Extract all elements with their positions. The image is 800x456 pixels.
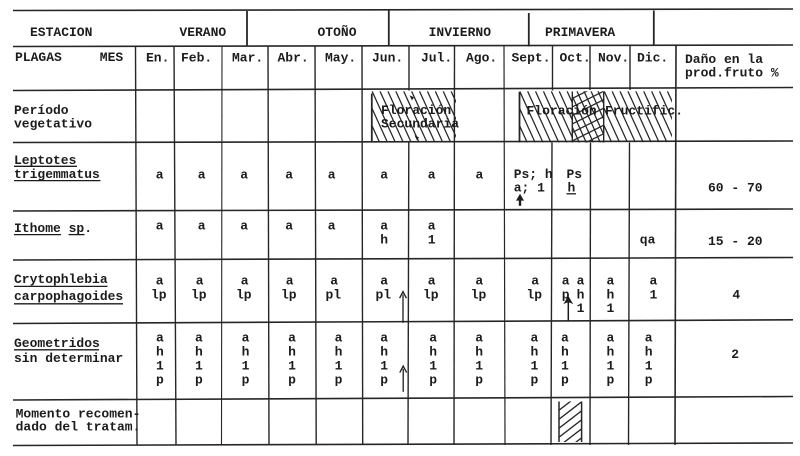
svg-text:60 - 70: 60 - 70 [708,181,763,196]
svg-text:1: 1 [645,359,653,374]
svg-text:a: a [607,331,615,346]
svg-text:lp: lp [281,288,297,303]
svg-text:a: a [156,168,164,183]
svg-text:a: a [380,219,388,234]
svg-text:1: 1 [531,359,539,374]
svg-text:h: h [645,345,653,360]
svg-text:Secundaria: Secundaria [381,117,459,132]
svg-text:a: a [650,274,658,289]
svg-text:1: 1 [429,359,437,374]
svg-text:a: a [285,168,293,183]
svg-text:a: a [241,274,249,289]
svg-text:15 - 20: 15 - 20 [708,234,763,249]
svg-text:a: a [428,274,436,289]
svg-text:p: p [380,373,388,388]
svg-text:Fructific.: Fructific. [605,104,683,119]
svg-text:lp: lp [151,288,167,303]
svg-text:h: h [335,345,343,360]
svg-text:h: h [380,345,388,360]
svg-text:p: p [561,373,569,388]
svg-text:h: h [156,345,164,360]
svg-text:lp: lp [471,288,487,303]
svg-text:a: a [156,219,164,234]
svg-text:a: a [330,274,338,289]
svg-text:ESTACION: ESTACION [30,25,92,40]
svg-text:h: h [429,345,437,360]
svg-text:En.: En. [146,50,169,65]
svg-text:lp: lp [236,288,252,303]
svg-text:1: 1 [380,359,388,374]
svg-text:lp: lp [191,288,207,303]
svg-text:pl: pl [326,288,342,303]
svg-text:lp: lp [423,288,439,303]
svg-text:a: a [380,274,388,289]
svg-text:May.: May. [325,50,356,65]
svg-text:a; 1: a; 1 [514,180,545,195]
svg-text:p: p [645,373,653,388]
svg-text:1: 1 [195,359,203,374]
svg-text:trigemmatus: trigemmatus [14,167,100,182]
svg-text:OTOÑO: OTOÑO [318,25,357,40]
svg-text:a: a [476,168,484,183]
svg-text:a: a [240,168,248,183]
svg-text:a: a [242,331,250,346]
svg-text:1: 1 [561,359,569,374]
svg-text:Nov.: Nov. [598,50,629,65]
svg-text:a: a [562,274,570,289]
svg-text:1: 1 [288,359,296,374]
svg-text:2: 2 [731,347,739,362]
svg-text:PRIMAVERA: PRIMAVERA [545,25,615,40]
svg-text:p: p [475,373,483,388]
svg-text:a: a [561,331,569,346]
svg-text:vegetativo: vegetativo [14,117,92,132]
svg-text:a: a [285,219,293,234]
svg-text:Jul.: Jul. [421,50,452,65]
svg-text:carpophagoides: carpophagoides [14,289,123,304]
svg-text:a: a [328,168,336,183]
svg-text:a: a [428,168,436,183]
svg-text:Ithome sp.: Ithome sp. [14,221,92,236]
svg-text:p: p [429,373,437,388]
svg-text:Floración: Floración [527,104,597,119]
svg-text:a: a [240,219,248,234]
svg-text:h: h [561,345,569,360]
svg-text:a: a [475,331,483,346]
svg-text:a: a [607,274,615,289]
svg-text:dado del tratam.: dado del tratam. [16,420,141,435]
svg-text:a: a [196,274,204,289]
svg-text:a: a [531,331,539,346]
svg-text:a: a [429,331,437,346]
svg-text:Crytophlebia: Crytophlebia [14,272,108,287]
svg-text:h: h [607,345,615,360]
svg-text:pl: pl [376,288,392,303]
svg-text:Dic.: Dic. [637,50,668,65]
svg-text:prod.fruto %: prod.fruto % [685,66,779,81]
svg-text:a: a [645,331,653,346]
svg-text:p: p [607,373,615,388]
svg-text:a: a [286,274,294,289]
svg-text:a: a [475,274,483,289]
svg-text:a: a [335,331,343,346]
svg-text:h: h [380,233,388,248]
svg-text:a: a [198,168,206,183]
svg-text:Feb.: Feb. [181,50,212,65]
svg-text:a: a [428,219,436,234]
svg-text:Abr.: Abr. [278,50,309,65]
svg-text:1: 1 [475,359,483,374]
svg-text:lp: lp [527,288,543,303]
svg-text:h: h [195,345,203,360]
svg-text:p: p [288,373,296,388]
svg-text:a: a [156,331,164,346]
svg-text:a: a [531,274,539,289]
svg-text:1: 1 [650,288,658,303]
svg-text:sin determinar: sin determinar [14,351,123,366]
svg-text:h: h [568,180,576,195]
svg-text:a: a [328,219,336,234]
svg-text:a: a [380,331,388,346]
svg-text:4: 4 [732,288,740,303]
svg-text:h: h [531,345,539,360]
svg-text:Geometridos: Geometridos [14,336,100,351]
svg-text:a: a [577,274,585,289]
svg-text:qa: qa [640,233,656,248]
svg-text:1: 1 [607,359,615,374]
svg-text:Sept.: Sept. [512,50,551,65]
svg-text:h: h [242,345,250,360]
svg-text:1: 1 [428,233,436,248]
svg-text:h: h [288,345,296,360]
svg-text:Ago.: Ago. [466,50,497,65]
svg-text:a: a [198,219,206,234]
svg-text:p: p [195,373,203,388]
svg-text:p: p [242,373,250,388]
svg-text:INVIERNO: INVIERNO [429,25,492,40]
svg-text:a: a [156,274,164,289]
svg-text:1: 1 [242,359,250,374]
svg-text:PLAGAS: PLAGAS [15,50,62,65]
svg-text:p: p [335,373,343,388]
svg-text:1: 1 [577,301,585,316]
svg-text:1: 1 [335,359,343,374]
svg-text:VERANO: VERANO [179,25,226,40]
svg-text:Jun.: Jun. [372,50,403,65]
svg-text:a: a [380,168,388,183]
svg-text:p: p [156,373,164,388]
svg-text:MES: MES [100,50,124,65]
svg-text:Mar.: Mar. [232,50,263,65]
svg-text:a: a [195,331,203,346]
svg-text:p: p [531,373,539,388]
svg-text:a: a [288,331,296,346]
svg-text:h: h [475,345,483,360]
svg-text:1: 1 [156,359,164,374]
svg-text:1: 1 [607,301,615,316]
svg-text:Oct.: Oct. [560,50,591,65]
